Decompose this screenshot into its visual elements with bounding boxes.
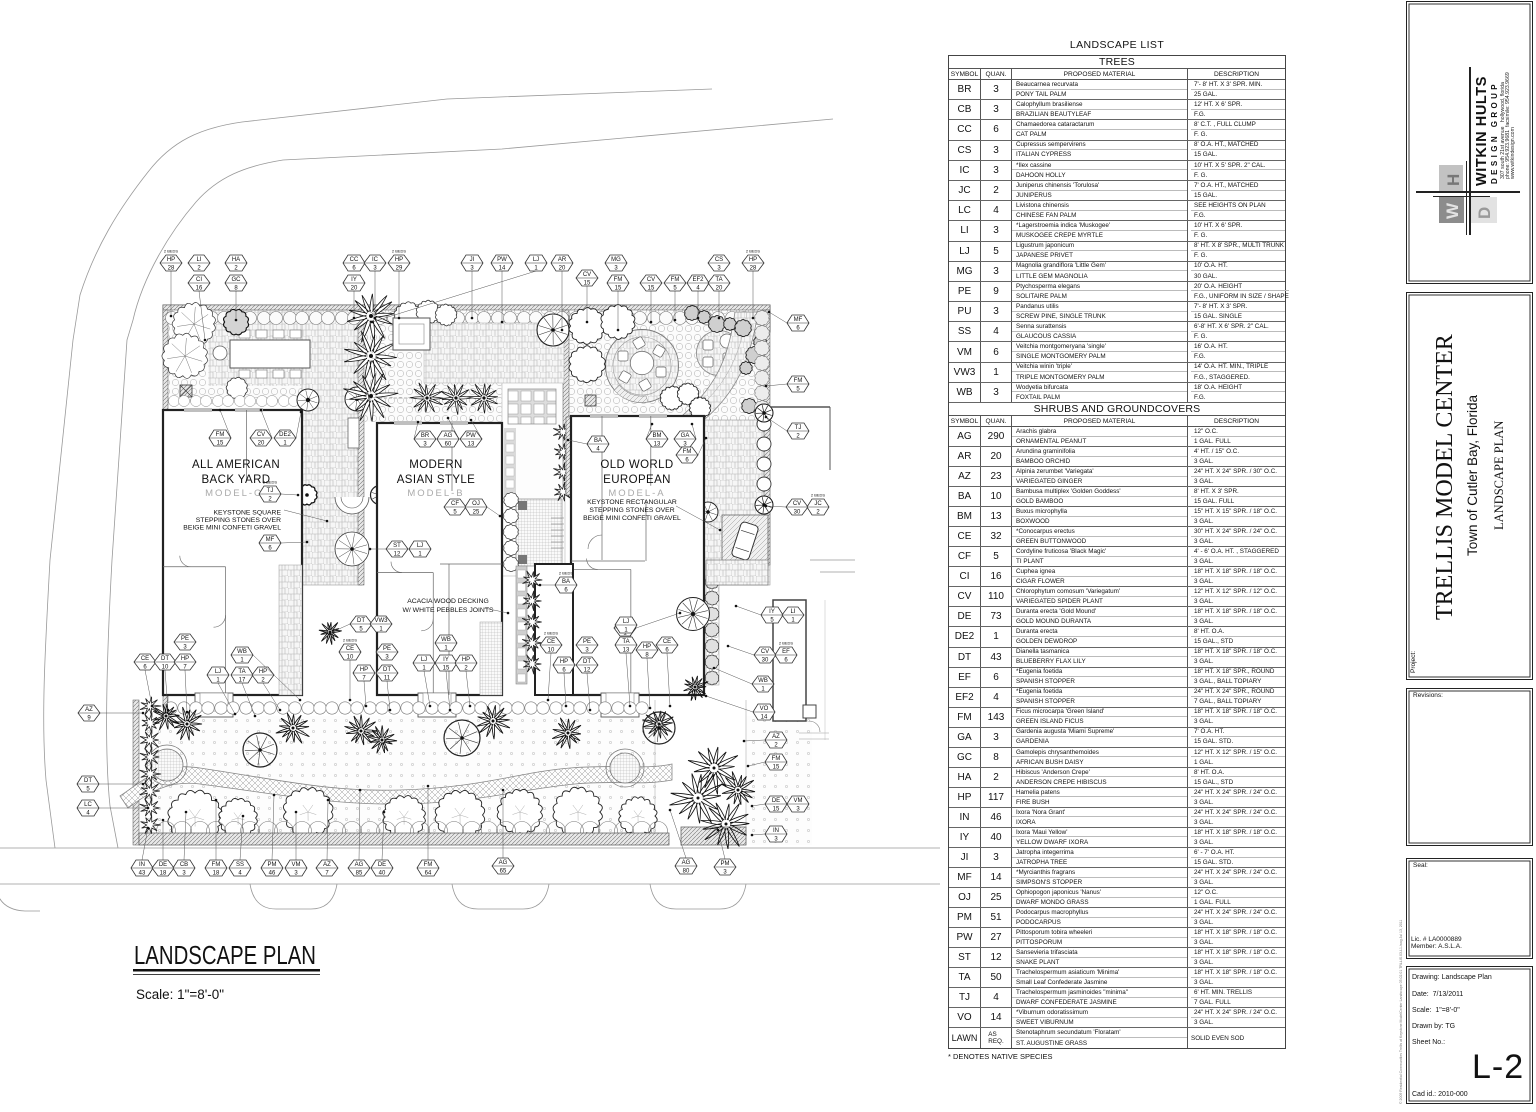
svg-text:CF: CF [451,501,459,507]
svg-text:80: 80 [683,869,690,875]
svg-text:WB: WB [758,678,768,684]
svg-text:CV: CV [761,649,769,655]
svg-text:2 BEDS: 2 BEDS [263,480,278,485]
svg-text:BR: BR [421,433,430,439]
svg-text:HP: HP [167,257,175,263]
svg-text:WB: WB [237,649,247,655]
svg-text:10: 10 [162,665,169,671]
svg-text:WB: WB [441,637,451,643]
svg-text:BEIGE MINI CONFETI GRAVEL: BEIGE MINI CONFETI GRAVEL [583,515,681,522]
svg-text:VO: VO [760,706,769,712]
svg-text:28: 28 [168,266,175,272]
svg-text:CI: CI [196,277,202,283]
svg-text:14: 14 [761,715,768,721]
svg-text:SS: SS [236,862,244,868]
svg-text:EF: EF [782,649,790,655]
svg-text:HP: HP [181,656,189,662]
svg-text:AZ: AZ [85,707,93,713]
svg-text:IN: IN [773,828,779,834]
svg-text:2 BEDS: 2 BEDS [811,493,826,498]
svg-text:AZ: AZ [323,862,331,868]
svg-text:15: 15 [584,281,591,287]
svg-text:2 BEDS: 2 BEDS [559,571,574,576]
svg-text:HP: HP [360,667,368,673]
svg-text:FM: FM [212,862,221,868]
svg-text:25: 25 [473,510,480,516]
svg-text:15: 15 [615,286,622,292]
svg-text:HP: HP [749,257,757,263]
svg-text:CV: CV [647,277,655,283]
svg-text:ASIAN STYLE: ASIAN STYLE [397,474,476,486]
svg-text:VW3: VW3 [374,618,388,624]
svg-text:LJ: LJ [215,669,221,675]
svg-text:ALL AMERICAN: ALL AMERICAN [192,459,280,471]
svg-text:KEYSTONE SQUARE: KEYSTONE SQUARE [214,510,282,517]
svg-text:IC: IC [372,257,379,263]
svg-text:30: 30 [794,510,801,516]
svg-text:VM: VM [292,862,301,868]
svg-text:MF: MF [266,537,275,543]
svg-text:KEYSTONE RECTANGULAR: KEYSTONE RECTANGULAR [587,499,677,506]
svg-text:MODEL-A: MODEL-A [608,488,665,499]
svg-text:DT: DT [383,667,391,673]
svg-text:2 BEDS: 2 BEDS [544,631,559,636]
svg-text:AG: AG [444,433,453,439]
svg-text:HP: HP [462,657,470,663]
svg-text:CB: CB [180,862,188,868]
svg-text:FM: FM [614,277,623,283]
svg-text:BA: BA [562,579,570,585]
svg-text:HP: HP [395,257,403,263]
svg-text:MF: MF [794,317,803,323]
svg-text:PE: PE [181,636,189,642]
svg-text:65: 65 [500,869,507,875]
svg-text:15: 15 [443,666,450,672]
svg-text:18: 18 [160,871,167,877]
svg-text:LI: LI [196,257,201,263]
svg-text:CS: CS [715,257,723,263]
svg-text:DE: DE [378,862,386,868]
svg-text:TJ: TJ [267,488,274,494]
svg-text:CE: CE [547,639,555,645]
svg-text:12: 12 [394,552,401,558]
svg-text:FM: FM [424,862,433,868]
svg-text:PE: PE [383,646,391,652]
svg-text:LC: LC [84,802,92,808]
svg-text:DT: DT [84,778,92,784]
svg-text:LJ: LJ [417,543,423,549]
svg-text:2 BEDS: 2 BEDS [164,249,179,254]
svg-text:18: 18 [213,871,220,877]
svg-text:EUROPEAN: EUROPEAN [603,474,671,486]
svg-text:AR: AR [558,257,567,263]
svg-text:FM: FM [671,277,680,283]
svg-text:17: 17 [239,678,246,684]
svg-text:2 BEDS: 2 BEDS [746,249,761,254]
svg-text:IY: IY [443,657,449,663]
svg-text:IY: IY [769,609,775,615]
svg-text:13: 13 [654,442,661,448]
svg-text:2 BEDS: 2 BEDS [779,641,794,646]
svg-text:12: 12 [584,668,591,674]
svg-text:DT: DT [583,659,591,665]
svg-text:20: 20 [716,286,723,292]
svg-text:JC: JC [814,501,822,507]
svg-text:TA: TA [238,669,245,675]
svg-text:DT: DT [357,618,365,624]
svg-text:IN: IN [139,862,145,868]
svg-text:13: 13 [623,648,630,654]
svg-text:AG: AG [355,862,364,868]
svg-text:CE: CE [663,639,671,645]
svg-text:DT: DT [161,656,169,662]
svg-text:CE: CE [141,656,149,662]
svg-text:AZ: AZ [772,734,780,740]
svg-text:20: 20 [258,441,265,447]
svg-text:14: 14 [499,266,506,272]
svg-text:Scale: 1"=8'-0": Scale: 1"=8'-0" [136,987,224,1002]
svg-text:W/ WHITE PEBBLES JOINTS: W/ WHITE PEBBLES JOINTS [402,607,493,614]
svg-text:ST: ST [393,543,401,549]
svg-text:CE: CE [346,646,354,652]
svg-text:28: 28 [750,266,757,272]
svg-text:STEPPING STONES OVER: STEPPING STONES OVER [196,517,281,524]
svg-text:HP: HP [560,659,568,665]
svg-text:15: 15 [217,441,224,447]
svg-text:FM: FM [216,432,225,438]
svg-text:85: 85 [356,871,363,877]
svg-text:HA: HA [232,257,240,263]
svg-text:MODEL-B: MODEL-B [407,488,464,499]
svg-text:11: 11 [384,676,391,682]
svg-text:16: 16 [196,286,203,292]
svg-text:DE2: DE2 [279,432,291,438]
svg-text:CV: CV [583,272,591,278]
svg-text:HP: HP [259,669,267,675]
svg-text:MG: MG [611,257,621,263]
svg-text:PM: PM [268,862,277,868]
svg-text:TJ: TJ [795,425,802,431]
svg-text:VM: VM [794,798,803,804]
svg-text:TA: TA [622,639,629,645]
svg-text:BEIGE MINI CONFETI GRAVEL: BEIGE MINI CONFETI GRAVEL [183,525,281,532]
svg-text:BACK YARD: BACK YARD [201,474,270,486]
svg-text:15: 15 [773,807,780,813]
svg-text:PE: PE [583,639,591,645]
svg-text:20: 20 [559,266,566,272]
svg-text:2 BEDS: 2 BEDS [343,638,358,643]
svg-text:STEPPING STONES OVER: STEPPING STONES OVER [589,507,674,514]
svg-text:64: 64 [425,871,432,877]
svg-text:ACACIA WOOD DECKING: ACACIA WOOD DECKING [407,598,489,605]
svg-text:FM: FM [794,378,803,384]
svg-text:40: 40 [379,871,386,877]
svg-text:29: 29 [396,266,403,272]
svg-text:15: 15 [773,765,780,771]
svg-text:20: 20 [351,286,358,292]
svg-text:46: 46 [269,871,276,877]
svg-text:MODERN: MODERN [409,459,463,471]
svg-text:IY: IY [351,277,357,283]
svg-text:JI: JI [470,257,475,263]
svg-text:TA: TA [715,277,722,283]
svg-text:CC: CC [350,257,359,263]
svg-text:AG: AG [499,860,508,866]
svg-text:LJ: LJ [533,257,539,263]
svg-text:FM: FM [683,449,692,455]
svg-text:15: 15 [648,286,655,292]
svg-text:DE: DE [772,798,780,804]
svg-text:BM: BM [653,433,662,439]
svg-text:43: 43 [139,871,146,877]
svg-text:PM: PM [721,861,730,867]
svg-text:60: 60 [445,442,452,448]
svg-text:DE: DE [159,862,167,868]
svg-text:BA: BA [594,438,602,444]
svg-text:MODEL-C: MODEL-C [205,488,263,499]
svg-text:HP: HP [643,644,651,650]
svg-text:13: 13 [468,442,475,448]
svg-text:2 BEDS: 2 BEDS [392,249,407,254]
svg-text:FM: FM [772,756,781,762]
svg-text:OJ: OJ [472,501,480,507]
svg-text:PW: PW [466,433,476,439]
svg-text:CV: CV [257,432,265,438]
svg-text:LJ: LJ [421,657,427,663]
svg-text:10: 10 [347,655,354,661]
svg-text:LANDSCAPE PLAN: LANDSCAPE PLAN [134,940,316,970]
svg-text:GC: GC [232,277,242,283]
svg-text:OLD WORLD: OLD WORLD [600,459,673,471]
svg-text:GA: GA [681,433,690,439]
svg-text:10: 10 [548,648,555,654]
svg-text:EF2: EF2 [692,277,704,283]
svg-text:PW: PW [497,257,507,263]
svg-text:30: 30 [762,658,769,664]
svg-text:LI: LI [790,609,795,615]
svg-text:CV: CV [793,501,801,507]
svg-text:AG: AG [682,860,691,866]
svg-text:LJ: LJ [623,619,629,625]
